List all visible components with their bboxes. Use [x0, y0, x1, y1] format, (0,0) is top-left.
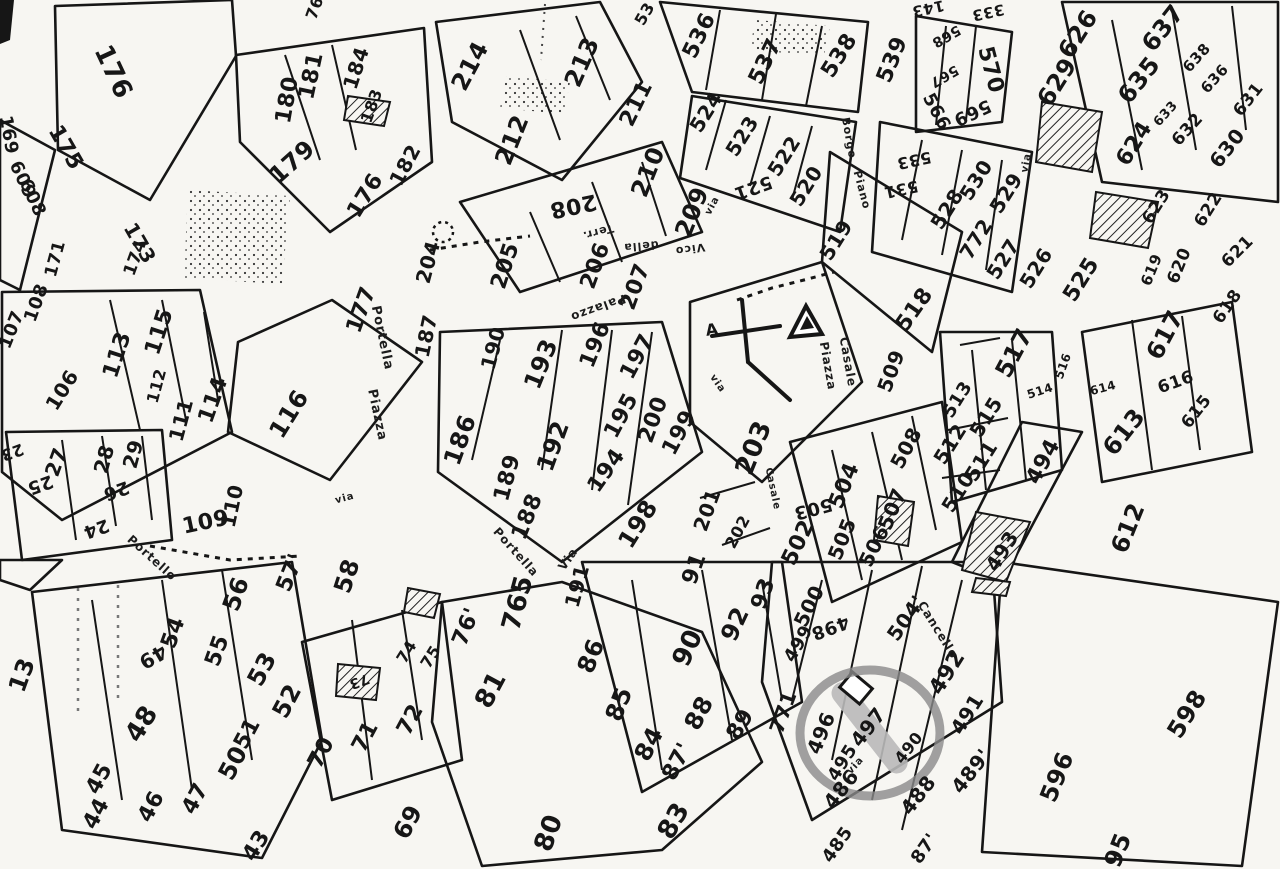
cadastral-map: 1761751696096081801811841831791761821731…: [0, 0, 1280, 869]
landmark-triangle-icon: [790, 306, 822, 337]
survey-dotted-circle: [433, 222, 453, 242]
parcel-label: A: [705, 321, 720, 339]
street-label: della: [623, 239, 659, 253]
